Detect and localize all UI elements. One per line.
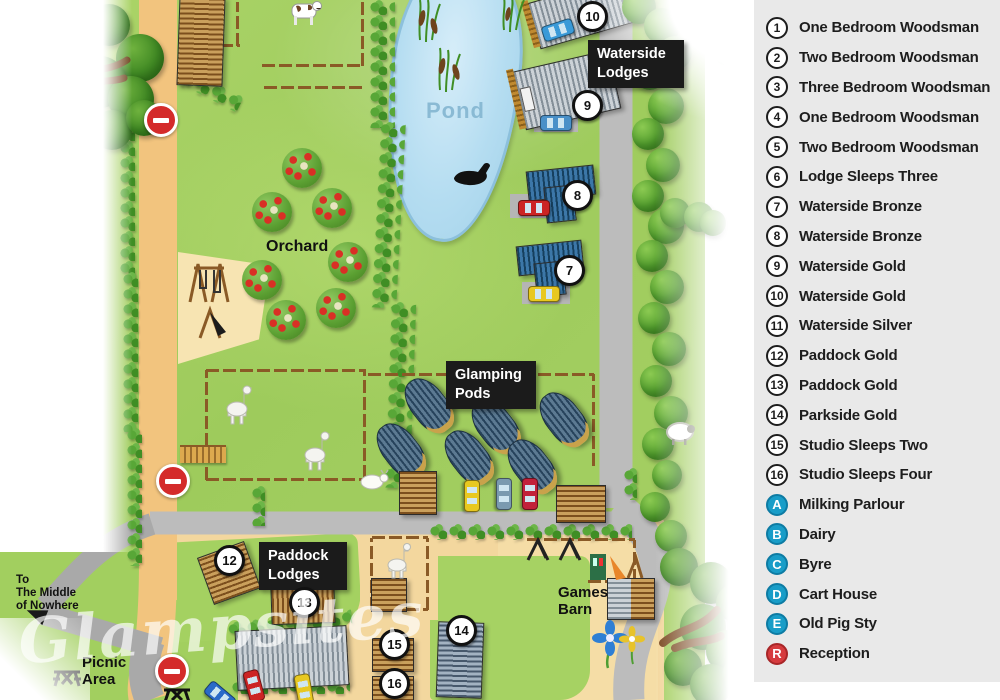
legend-badge: E xyxy=(766,613,788,635)
legend-item: 2Two Bedroom Woodsman xyxy=(766,43,994,73)
legend-label: Paddock Gold xyxy=(799,347,897,364)
legend-badge: 8 xyxy=(766,225,788,247)
car-icon xyxy=(528,286,560,302)
legend-label: Byre xyxy=(799,556,832,573)
legend-badge: D xyxy=(766,583,788,605)
legend-badge: 15 xyxy=(766,434,788,456)
map-marker-16: 16 xyxy=(379,668,410,699)
climbing-frame-icon xyxy=(588,550,644,582)
legend-badge: 3 xyxy=(766,76,788,98)
alpaca-icon xyxy=(384,540,414,580)
legend-item: 14Parkside Gold xyxy=(766,400,994,430)
no-entry-icon xyxy=(144,103,178,137)
cow-icon xyxy=(286,0,326,28)
legend-item: 13Paddock Gold xyxy=(766,371,994,401)
legend-label: Two Bedroom Woodsman xyxy=(799,49,979,66)
legend-badge: 13 xyxy=(766,374,788,396)
legend-item: 9Waterside Gold xyxy=(766,251,994,281)
farm-barn xyxy=(176,0,225,87)
games-barn-building xyxy=(607,578,655,620)
fence xyxy=(205,370,208,480)
map-marker-14: 14 xyxy=(446,615,477,646)
goat-icon xyxy=(358,470,390,492)
legend-item: BDairy xyxy=(766,520,994,550)
legend-label: Paddock Gold xyxy=(799,377,897,394)
legend-badge: 9 xyxy=(766,255,788,277)
legend-item: 10Waterside Gold xyxy=(766,281,994,311)
legend-label: Waterside Bronze xyxy=(799,228,922,245)
legend-badge: 5 xyxy=(766,136,788,158)
legend-badge: A xyxy=(766,494,788,516)
apple-tree xyxy=(252,192,292,232)
white-fade xyxy=(0,0,132,552)
legend-label: Reception xyxy=(799,645,870,662)
legend-badge: 4 xyxy=(766,106,788,128)
map-marker-15: 15 xyxy=(379,629,410,660)
fence xyxy=(206,478,364,481)
legend-badge: 1 xyxy=(766,17,788,39)
apple-tree xyxy=(316,288,356,328)
hedge xyxy=(250,486,265,526)
legend-badge: 12 xyxy=(766,345,788,367)
apple-tree xyxy=(266,300,306,340)
games-barn-label: Games Barn xyxy=(558,584,608,618)
map-marker-9: 9 xyxy=(572,90,603,121)
waterside-lodges-label: Waterside Lodges xyxy=(588,40,684,88)
legend-badge: 2 xyxy=(766,47,788,69)
fence xyxy=(206,369,366,372)
parking-shed xyxy=(556,485,606,523)
fence xyxy=(236,2,239,46)
legend-item: 16Studio Sleeps Four xyxy=(766,460,994,490)
legend-label: Dairy xyxy=(799,526,836,543)
map-marker-7: 7 xyxy=(554,255,585,286)
pen-shed xyxy=(371,578,407,612)
legend-item: 12Paddock Gold xyxy=(766,341,994,371)
map-marker-8: 8 xyxy=(562,180,593,211)
no-entry-icon xyxy=(155,654,189,688)
legend-badge: B xyxy=(766,523,788,545)
games-swings-icon xyxy=(526,536,596,562)
legend-badge: 11 xyxy=(766,315,788,337)
picnic-area-label: Picnic Area xyxy=(82,654,126,688)
legend-label: Two Bedroom Woodsman xyxy=(799,139,979,156)
legend-item: AMilking Parlour xyxy=(766,490,994,520)
fence xyxy=(426,538,429,610)
map-marker-12: 12 xyxy=(214,545,245,576)
map-marker-13: 13 xyxy=(289,587,320,618)
legend-item: 6Lodge Sleeps Three xyxy=(766,162,994,192)
car-icon xyxy=(518,200,550,216)
orchard-label: Orchard xyxy=(266,238,328,256)
apple-tree xyxy=(242,260,282,300)
legend-label: One Bedroom Woodsman xyxy=(799,19,979,36)
white-fade xyxy=(0,618,90,700)
legend-label: Lodge Sleeps Three xyxy=(799,168,938,185)
paddock-lodges-label: Paddock Lodges xyxy=(259,542,347,590)
legend-item: 15Studio Sleeps Two xyxy=(766,430,994,460)
legend-item: EOld Pig Sty xyxy=(766,609,994,639)
parking-shed xyxy=(399,471,437,515)
fence xyxy=(361,0,364,66)
legend-badge: 16 xyxy=(766,464,788,486)
legend-item: CByre xyxy=(766,549,994,579)
legend-item: 3Three Bedroom Woodsman xyxy=(766,73,994,103)
legend-label: Waterside Silver xyxy=(799,317,912,334)
legend-label: Waterside Gold xyxy=(799,288,906,305)
hedge xyxy=(368,0,395,128)
legend-label: Studio Sleeps Two xyxy=(799,437,928,454)
legend-item: RReception xyxy=(766,639,994,669)
to-nowhere-label: To The Middle of Nowhere xyxy=(16,574,79,614)
glamping-pods-label: Glamping Pods xyxy=(446,361,536,409)
legend-badge: 14 xyxy=(766,404,788,426)
site-map: Pond Orchard Waterside Lodges Glamping P… xyxy=(0,0,757,700)
duck-icon xyxy=(450,158,494,190)
car-icon xyxy=(496,478,512,510)
legend-label: Cart House xyxy=(799,586,877,603)
legend-label: Parkside Gold xyxy=(799,407,897,424)
legend-label: Waterside Bronze xyxy=(799,198,922,215)
car-icon xyxy=(540,115,572,131)
map-marker-10: 10 xyxy=(577,1,608,32)
legend-item: 8Waterside Bronze xyxy=(766,222,994,252)
fence xyxy=(592,374,595,466)
flower-icons xyxy=(592,616,644,668)
legend-label: Old Pig Sty xyxy=(799,615,877,632)
legend-badge: 7 xyxy=(766,196,788,218)
legend-badge: 6 xyxy=(766,166,788,188)
no-entry-icon xyxy=(156,464,190,498)
slide-icon xyxy=(194,306,230,340)
apple-tree xyxy=(282,148,322,188)
legend-label: One Bedroom Woodsman xyxy=(799,109,979,126)
legend-badge: C xyxy=(766,553,788,575)
legend-badge: R xyxy=(766,643,788,665)
swing-set-icon xyxy=(186,258,232,306)
alpaca-icon xyxy=(222,382,254,426)
picnic-table-icon xyxy=(162,686,192,700)
apple-tree xyxy=(328,242,368,282)
legend-label: Studio Sleeps Four xyxy=(799,466,932,483)
legend-item: 7Waterside Bronze xyxy=(766,192,994,222)
hedge xyxy=(622,468,637,500)
legend-label: Waterside Gold xyxy=(799,258,906,275)
legend-item: 4One Bedroom Woodsman xyxy=(766,102,994,132)
legend-item: DCart House xyxy=(766,579,994,609)
car-icon xyxy=(464,480,480,512)
legend-panel: 1One Bedroom Woodsman2Two Bedroom Woodsm… xyxy=(754,0,1000,682)
wood-fence xyxy=(180,445,226,463)
legend-label: Three Bedroom Woodsman xyxy=(799,79,990,96)
fence xyxy=(264,86,364,89)
legend-rows: 1One Bedroom Woodsman2Two Bedroom Woodsm… xyxy=(766,13,994,669)
legend-badge: 10 xyxy=(766,285,788,307)
fence xyxy=(372,536,428,539)
alpaca-icon xyxy=(300,428,332,472)
legend-item: 1One Bedroom Woodsman xyxy=(766,13,994,43)
fence xyxy=(262,64,364,67)
fence xyxy=(363,370,366,478)
legend-item: 5Two Bedroom Woodsman xyxy=(766,132,994,162)
legend-item: 11Waterside Silver xyxy=(766,311,994,341)
pond-label: Pond xyxy=(426,98,485,124)
car-icon xyxy=(522,478,538,510)
apple-tree xyxy=(312,188,352,228)
legend-label: Milking Parlour xyxy=(799,496,904,513)
